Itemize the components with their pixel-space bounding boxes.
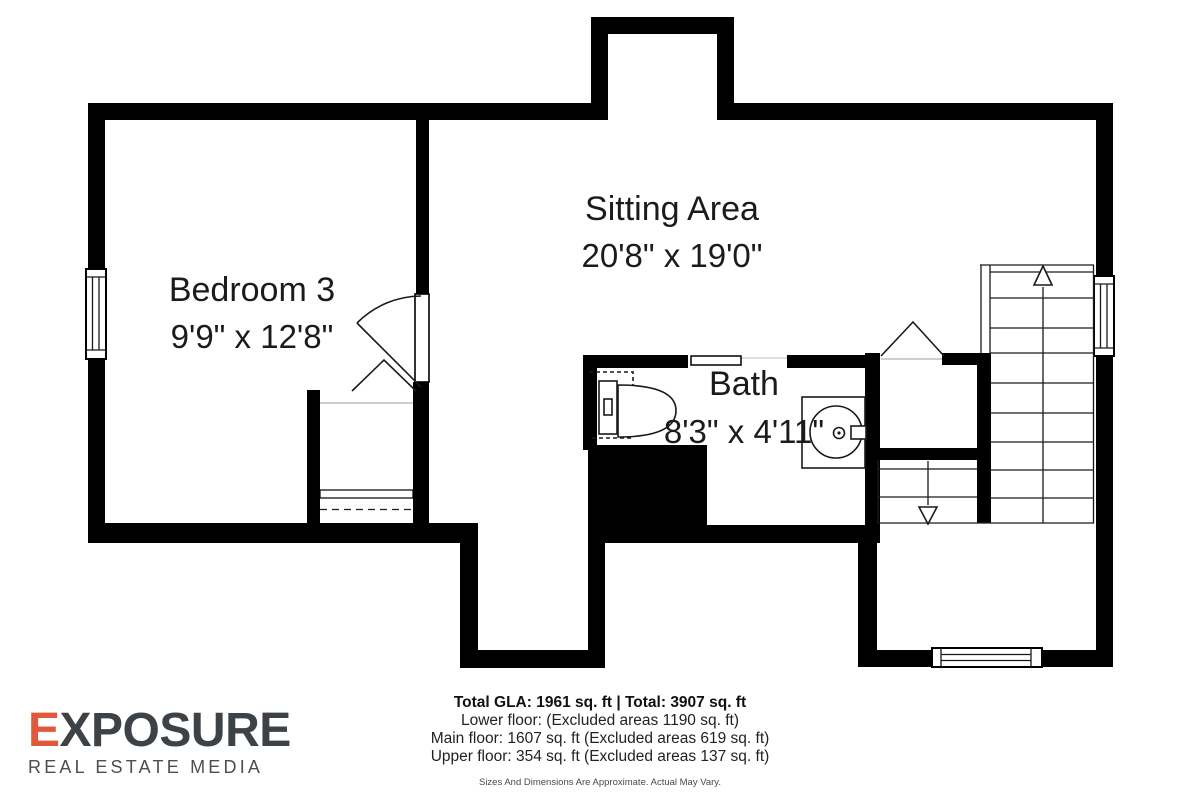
wall-lowerright-left [858, 525, 877, 667]
window-right [1094, 276, 1114, 356]
wall-bottom-left [88, 523, 460, 543]
room-dims-sitting-area: 20'8" x 19'0" [510, 238, 834, 274]
logo: EXPOSURE REAL ESTATE MEDIA [28, 706, 291, 778]
closet-shelf [320, 490, 413, 510]
logo-subtitle: REAL ESTATE MEDIA [28, 757, 291, 778]
wall-bump-top [591, 17, 734, 34]
logo-wordmark: EXPOSURE [28, 706, 291, 756]
wall-bottom-right-a [858, 650, 933, 667]
stairs-up [980, 265, 1094, 523]
wall-top-left [88, 103, 591, 120]
wall-left-upper [88, 103, 105, 270]
wall-bay-bottom [460, 650, 605, 668]
disclaimer-text: Sizes And Dimensions Are Approximate. Ac… [0, 777, 1200, 788]
wall-bump-right [717, 17, 734, 120]
wall-mass [588, 445, 707, 543]
arrow-up-icon [1034, 266, 1052, 285]
logo-rest-letters: XPOSURE [60, 704, 291, 757]
window-bottom [932, 648, 1042, 667]
room-label-bedroom3: Bedroom 3 [102, 272, 402, 309]
bedroom-closet-bifold-door [320, 360, 416, 403]
wall-bedroom-closet-left [307, 390, 320, 543]
wall-bedroom-closet-right [413, 382, 429, 543]
room-label-bath: Bath [594, 366, 894, 403]
bath-door [691, 356, 787, 365]
wall-left-lower [88, 357, 105, 543]
wall-top-right [734, 103, 1113, 120]
hall-closet-bifold-door [881, 322, 944, 359]
room-dims-bath: 8'3" x 4'11" [594, 414, 894, 450]
wall-stairs-left [977, 353, 991, 523]
floor-plan: Bedroom 3 9'9" x 12'8" Sitting Area 20'8… [0, 0, 1200, 800]
wall-right-upper [1096, 103, 1113, 277]
wall-right-lower [1096, 355, 1113, 667]
wall-bedroom-partition [416, 103, 429, 294]
wall-bay-left [460, 523, 478, 668]
logo-accent-letter: E [28, 704, 60, 757]
arrow-down-icon [919, 507, 937, 524]
room-dims-bedroom3: 9'9" x 12'8" [102, 319, 402, 355]
wall-bath-bottom [705, 525, 880, 543]
room-label-sitting-area: Sitting Area [510, 191, 834, 228]
